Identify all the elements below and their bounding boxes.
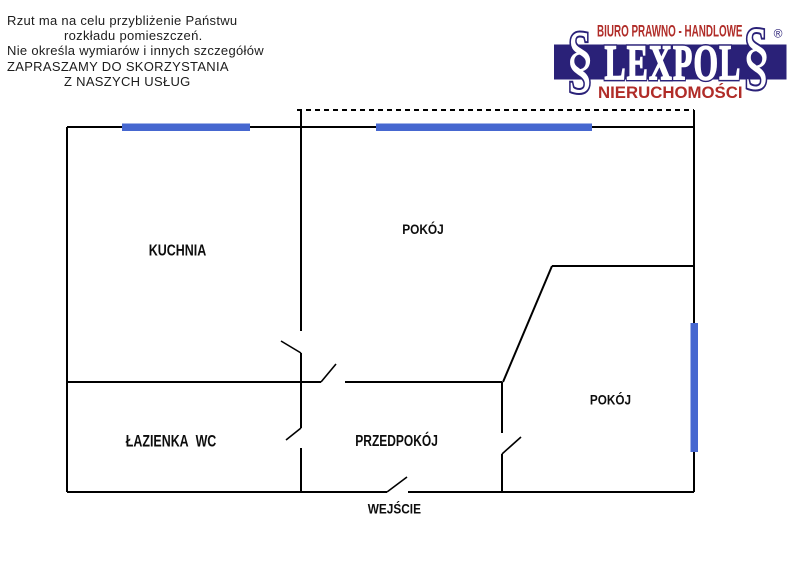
- svg-text:KUCHNIA: KUCHNIA: [149, 243, 207, 260]
- svg-text:§: §: [742, 14, 771, 97]
- svg-text:WEJŚCIE: WEJŚCIE: [368, 502, 421, 517]
- svg-text:LEXPOL: LEXPOL: [604, 36, 741, 91]
- svg-text:®: ®: [774, 27, 783, 41]
- svg-text:§: §: [566, 17, 595, 100]
- svg-text:ŁAZIENKA WC: ŁAZIENKA WC: [126, 433, 217, 451]
- svg-text:POKÓJ: POKÓJ: [590, 393, 631, 408]
- svg-text:PRZEDPOKÓJ: PRZEDPOKÓJ: [355, 432, 438, 450]
- svg-text:POKÓJ: POKÓJ: [402, 222, 444, 237]
